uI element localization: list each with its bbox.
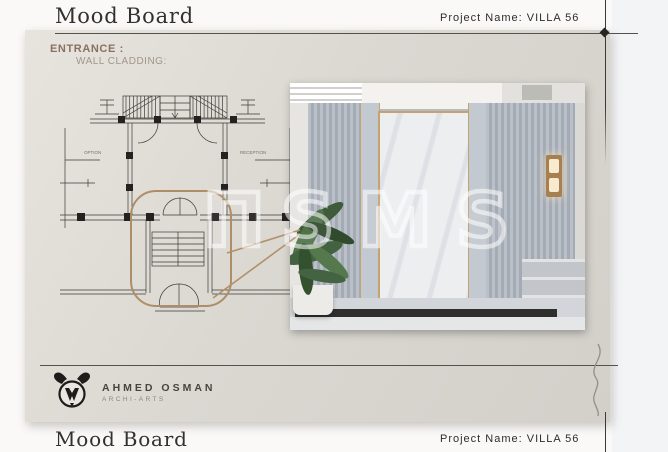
logo-tagline: ARCHI-ARTS: [102, 396, 216, 403]
wall-sconce-light: [546, 155, 562, 197]
page-right-margin: [612, 0, 668, 452]
page-title: Mood Board: [55, 4, 194, 28]
footer-title: Mood Board: [55, 427, 188, 451]
sconce-bulb: [549, 178, 559, 192]
watermark-partial-glyph: Π: [203, 184, 265, 258]
plan-labels: OPTION RECEPTION: [84, 150, 266, 155]
sconce-bulb: [549, 159, 559, 173]
plan-label-left: OPTION: [84, 150, 101, 155]
crease-squiggle: [586, 340, 612, 418]
footer-rule: [40, 365, 618, 366]
logo-company-name: AHMED OSMAN: [102, 382, 216, 394]
logo-text-block: AHMED OSMAN ARCHI-ARTS: [102, 382, 216, 403]
watermark-text: SMS: [281, 184, 533, 258]
project-name-footer: Project Name: VILLA 56: [440, 433, 579, 445]
border-line-top-right: [605, 0, 606, 165]
company-logo: AHMED OSMAN ARCHI-ARTS: [50, 371, 216, 413]
project-name-header: Project Name: VILLA 56: [440, 12, 579, 24]
roof-block: [522, 85, 552, 100]
plan-label-right: RECEPTION: [240, 150, 266, 155]
header-rule: [55, 33, 638, 34]
logo-emblem-icon: [50, 371, 94, 413]
section-title: ENTRANCE :: [50, 43, 124, 55]
border-line-bottom-right: [605, 412, 606, 452]
mood-board-slide: Mood Board Project Name: VILLA 56 ENTRAN…: [0, 0, 668, 452]
section-subtitle: WALL CLADDING:: [76, 56, 167, 67]
outer-paving: [290, 317, 585, 330]
